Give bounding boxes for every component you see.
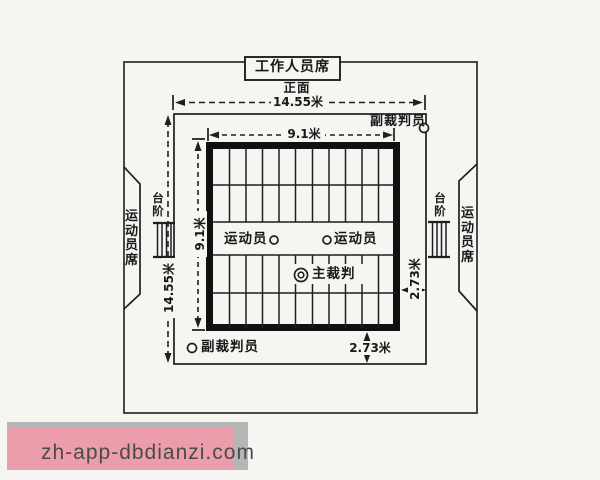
deputy-referee-bottom-marker [188, 344, 197, 353]
dim-inner-left-arrow-up [195, 141, 202, 151]
dim-margin-bottom-label: 2.73米 [343, 341, 397, 355]
watermark-text: zh-app-dbdianzi.com [41, 441, 255, 465]
dim-inner-width-label: 9.1米 [283, 127, 325, 141]
steps-left-rungs [158, 223, 172, 257]
dim-left-arrow-down [165, 353, 172, 363]
dim-inner-top-arrow-left [209, 132, 219, 139]
dim-bottom-margin-arrow-down [364, 354, 371, 363]
deputy-referee-top-label: 副裁判员 [370, 115, 426, 129]
steps-right-label: 台阶 [433, 192, 447, 218]
front-label: 正面 [274, 81, 320, 95]
dim-left-arrow-up [165, 115, 172, 125]
steps-right-rungs [433, 222, 447, 257]
athlete-left-label: 运动员 [224, 232, 268, 246]
dim-outer-width-label: 14.55米 [271, 95, 325, 109]
chief-referee-marker-outer [295, 269, 308, 282]
dim-top-arrow-left [175, 99, 185, 106]
steps-left-label: 台阶 [151, 192, 165, 218]
athlete-left-marker [270, 236, 278, 244]
athlete-seats-right-label: 运动员席 [460, 207, 475, 265]
dim-outer-height-label: 14.55米 [162, 258, 176, 318]
athlete-seats-left-label: 运动员席 [124, 210, 139, 268]
chief-referee-label: 主裁判 [312, 267, 356, 281]
dim-inner-height-label: 9.1米 [193, 211, 207, 257]
athlete-right-marker [323, 236, 331, 244]
staff-seats-label: 工作人员席 [245, 60, 340, 74]
dim-inner-left-arrow-down [195, 318, 202, 328]
athlete-right-label: 运动员 [334, 232, 378, 246]
deputy-referee-bottom-label: 副裁判员 [201, 340, 259, 354]
venue-layout-diagram: 工作人员席 正面 14.55米 9.1米 副裁判员 运动员 运动员 主裁判 副裁… [0, 0, 600, 480]
dim-margin-right-label: 2.73米 [408, 253, 422, 305]
dim-inner-top-arrow-right [383, 132, 393, 139]
dim-bottom-margin-arrow-up [364, 332, 371, 341]
dim-top-arrow-right [413, 99, 423, 106]
